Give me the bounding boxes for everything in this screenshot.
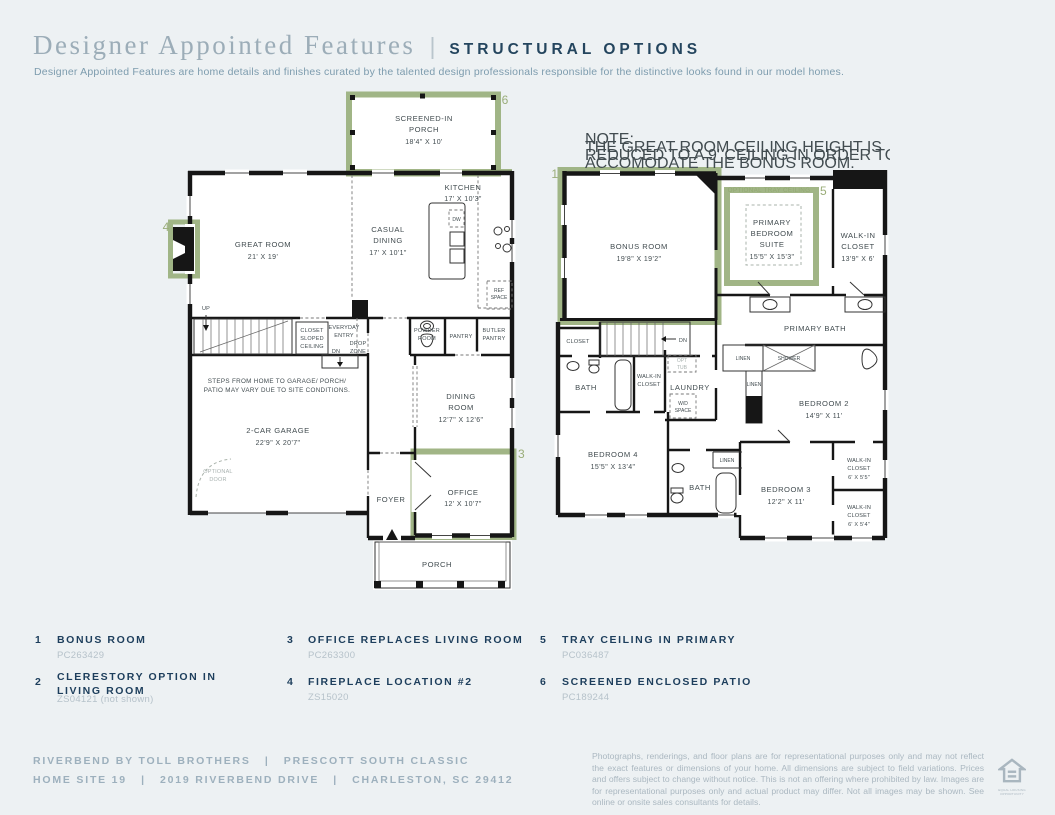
kitchen-label: KITCHEN: [445, 183, 482, 192]
opt-tub-label: OPT: [677, 358, 687, 364]
dn-label-2: DN: [679, 338, 687, 344]
svg-text:PANTRY: PANTRY: [482, 336, 505, 342]
svg-text:DOOR: DOOR: [209, 477, 226, 483]
svg-text:TUB: TUB: [677, 365, 688, 371]
svg-text:SPACE: SPACE: [675, 408, 692, 414]
property-info: RIVERBEND BY TOLL BROTHERS | PRESCOTT SO…: [33, 752, 513, 790]
svg-text:SLOPED: SLOPED: [300, 336, 324, 342]
marker-6: 6: [502, 93, 509, 107]
marker-5: 5: [820, 184, 827, 198]
tray-ceiling-label: OPTIONAL TRAY CEILING: [728, 187, 811, 194]
up-label: UP: [202, 306, 210, 312]
wic-b-label: WALK-IN: [847, 505, 871, 511]
marker-3: 3: [518, 447, 525, 461]
option-label: OFFICE REPLACES LIVING ROOM: [308, 634, 538, 648]
steps-note: STEPS FROM HOME TO GARAGE/ PORCH/: [208, 378, 346, 385]
option-code: ZS15020: [308, 692, 349, 703]
svg-text:PORCH: PORCH: [409, 125, 439, 134]
equal-housing-logo: EQUAL HOUSING OPPORTUNITY: [997, 758, 1027, 796]
option-label: FIREPLACE LOCATION #2: [308, 676, 538, 690]
svg-text:PATIO MAY VARY DUE TO SITE CON: PATIO MAY VARY DUE TO SITE CONDITIONS.: [204, 387, 350, 394]
dining-room-label: DINING: [446, 392, 476, 401]
brochure-page: Designer Appointed Features | STRUCTURAL…: [0, 0, 1055, 815]
svg-text:18'4" X 10': 18'4" X 10': [405, 139, 443, 146]
svg-text:CEILING: CEILING: [300, 344, 323, 350]
everyday-entry-label: EVERYDAY: [328, 325, 359, 331]
option-number: 4: [287, 676, 293, 688]
svg-text:CLOSET: CLOSET: [841, 242, 874, 251]
bedroom4-label: BEDROOM 4: [588, 450, 638, 459]
porch-label: PORCH: [422, 560, 452, 569]
dn-label: DN: [332, 349, 340, 355]
svg-text:CLOSET: CLOSET: [847, 466, 871, 472]
marker-1: 1: [551, 167, 558, 181]
svg-text:SUITE: SUITE: [760, 240, 785, 249]
svg-text:ZONE: ZONE: [350, 349, 366, 355]
pantry-label: PANTRY: [449, 334, 472, 340]
primary-bath-label: PRIMARY BATH: [784, 324, 846, 333]
primary-suite-label: PRIMARY: [753, 218, 791, 227]
bonus-room-label: BONUS ROOM: [610, 242, 668, 251]
equal-housing-house-icon: [998, 758, 1026, 784]
svg-text:17' X 10'3": 17' X 10'3": [444, 196, 482, 203]
laundry-label: LAUNDRY: [670, 383, 710, 392]
svg-text:12' X 10'7": 12' X 10'7": [444, 501, 482, 508]
second-floor-plan: NOTE: THE GREAT ROOM CEILING HEIGHT IS R…: [545, 130, 890, 555]
svg-text:ROOM: ROOM: [418, 336, 436, 342]
primary-closet-label: WALK-IN: [841, 231, 876, 240]
equal-housing-label: EQUAL HOUSING OPPORTUNITY: [997, 789, 1027, 796]
screened-porch-label: SCREENED-IN: [395, 114, 453, 123]
option-code: PC036487: [562, 650, 609, 661]
dw-label: DW: [452, 217, 461, 223]
ref-space-label: REF: [494, 288, 504, 294]
svg-text:6' X 5'5": 6' X 5'5": [848, 475, 870, 481]
option-code: PC189244: [562, 692, 609, 703]
svg-text:21' X 19': 21' X 19': [248, 254, 278, 261]
optional-door-label: OPTIONAL: [203, 469, 232, 475]
bedroom3-label: BEDROOM 3: [761, 485, 811, 494]
linen-label-2: LINEN: [747, 382, 762, 388]
option-code: PC263429: [57, 650, 104, 661]
property-line-2: HOME SITE 19 | 2019 RIVERBEND DRIVE | CH…: [33, 774, 513, 786]
powder-room-label: POWDER: [414, 328, 440, 334]
svg-text:DINING: DINING: [373, 236, 403, 245]
marker-4: 4: [163, 220, 170, 234]
title-sans: STRUCTURAL OPTIONS: [449, 41, 701, 59]
office-label: OFFICE: [448, 488, 479, 497]
option-number: 6: [540, 676, 546, 688]
svg-text:15'5" X 15'3": 15'5" X 15'3": [750, 254, 795, 261]
foyer-label: FOYER: [377, 495, 406, 504]
first-floor-plan: 6 4 3 SCREENED-IN PORCH 18'4" X 10' KITC…: [160, 85, 545, 600]
butler-pantry-label: BUTLER: [483, 328, 506, 334]
wic-a-label: WALK-IN: [847, 458, 871, 464]
option-number: 2: [35, 676, 41, 688]
page-title: Designer Appointed Features | STRUCTURAL…: [33, 30, 701, 61]
svg-text:ACCOMODATE THE BONUS ROOM.: ACCOMODATE THE BONUS ROOM.: [585, 155, 855, 172]
property-line-1: RIVERBEND BY TOLL BROTHERS | PRESCOTT SO…: [33, 755, 469, 767]
svg-text:19'8" X 19'2": 19'8" X 19'2": [617, 256, 662, 263]
svg-text:14'9" X 11': 14'9" X 11': [805, 413, 842, 420]
legal-disclaimer: Photographs, renderings, and floor plans…: [592, 751, 984, 809]
option-label: TRAY CEILING IN PRIMARY: [562, 634, 792, 648]
svg-text:15'5" X 13'4": 15'5" X 13'4": [591, 464, 636, 471]
option-code: PC263300: [308, 650, 355, 661]
svg-text:CLOSET: CLOSET: [847, 513, 871, 519]
bedroom2-label: BEDROOM 2: [799, 399, 849, 408]
svg-text:CLOSET: CLOSET: [637, 382, 661, 388]
title-divider: |: [429, 33, 435, 60]
svg-text:ENTRY: ENTRY: [334, 333, 354, 339]
svg-text:12'7" X 12'6": 12'7" X 12'6": [439, 417, 484, 424]
svg-text:12'2" X 11': 12'2" X 11': [767, 499, 804, 506]
title-serif: Designer Appointed Features: [33, 30, 415, 61]
option-label: BONUS ROOM: [57, 634, 267, 648]
svg-text:22'9" X 20'7": 22'9" X 20'7": [256, 440, 301, 447]
wic-mid-label: WALK-IN: [637, 374, 661, 380]
shower-label: SHOWER: [778, 356, 801, 362]
svg-text:13'9" X 6': 13'9" X 6': [841, 256, 874, 263]
page-subtitle: Designer Appointed Features are home det…: [34, 66, 844, 78]
casual-dining-label: CASUAL: [371, 225, 404, 234]
option-number: 1: [35, 634, 41, 646]
garage-label: 2-CAR GARAGE: [246, 426, 309, 435]
svg-text:ROOM: ROOM: [448, 403, 474, 412]
closet-sloped-label: CLOSET: [300, 328, 324, 334]
option-label: SCREENED ENCLOSED PATIO: [562, 676, 792, 690]
svg-text:BEDROOM: BEDROOM: [751, 229, 794, 238]
option-number: 5: [540, 634, 546, 646]
drop-zone-label: DROP: [350, 341, 367, 347]
linen-label-3: LINEN: [720, 458, 735, 464]
svg-text:6' X 5'4": 6' X 5'4": [848, 522, 870, 528]
fireplace-icon: [173, 227, 194, 271]
linen-label-1: LINEN: [736, 356, 751, 362]
svg-text:17' X 10'1": 17' X 10'1": [369, 250, 407, 257]
option-code: ZS04121 (not shown): [57, 694, 154, 705]
bath-mid-label: BATH: [575, 383, 597, 392]
closet-label: CLOSET: [566, 339, 590, 345]
wd-label: W/D: [678, 401, 688, 407]
bath-low-label: BATH: [689, 483, 711, 492]
great-room-label: GREAT ROOM: [235, 240, 291, 249]
option-number: 3: [287, 634, 293, 646]
svg-text:SPACE: SPACE: [491, 295, 508, 301]
